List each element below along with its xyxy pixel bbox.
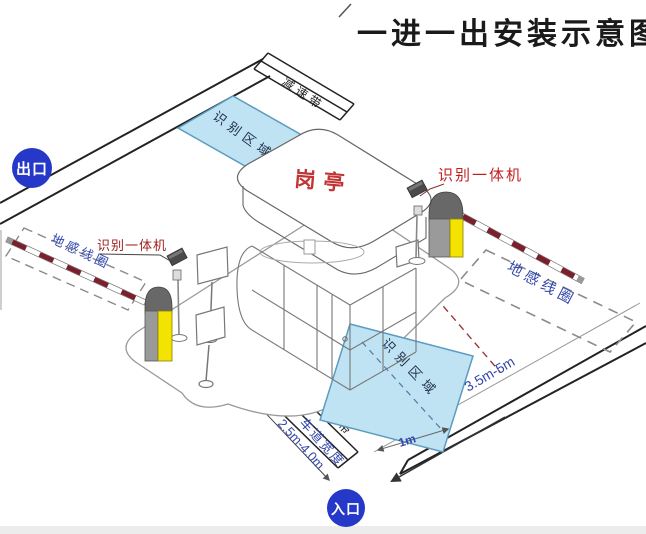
sign-base: [199, 381, 213, 388]
installation-diagram: 一进一出安装示意图 减速带 识别区域 地感线圈: [0, 0, 646, 534]
title-tick-mark: [339, 4, 351, 17]
barrier-machine-panel: [158, 311, 172, 361]
barrier-machine-body: [145, 311, 158, 361]
camera-bracket: [414, 206, 422, 215]
barrier-machine-panel: [450, 219, 463, 257]
camera-label-exit: 识别一体机: [97, 238, 167, 253]
booth-label: 岗亭: [294, 167, 354, 196]
barrier-machine-cap: [145, 287, 172, 313]
entrance-badge-label: 入口: [331, 501, 361, 517]
page-bottom-edge: [0, 526, 646, 534]
camera-bracket: [173, 270, 181, 280]
barrier-machine-cap: [429, 192, 463, 221]
barrier-machine-body: [429, 219, 450, 257]
plate-camera-icon: [167, 248, 187, 266]
page-left-edge: [0, 230, 2, 310]
booth-monitor: [304, 240, 315, 254]
camera-label-entry: 识别一体机: [438, 167, 523, 184]
exit-badge-label: 出口: [16, 160, 48, 178]
entrance-badge: 入口: [327, 489, 365, 527]
camera-base: [171, 335, 187, 342]
speed-bump-exit-label: 减速带: [279, 75, 327, 113]
camera-pole: [416, 216, 417, 258]
camera-pole: [178, 280, 179, 336]
camera-base: [409, 258, 425, 265]
diagram-title: 一进一出安装示意图: [357, 17, 646, 51]
exit-badge: 出口: [12, 148, 52, 188]
diagram-canvas: 一进一出安装示意图 减速带 识别区域 地感线圈: [0, 0, 646, 534]
ground-coil-entry-label: 地感线圈: [504, 259, 579, 310]
